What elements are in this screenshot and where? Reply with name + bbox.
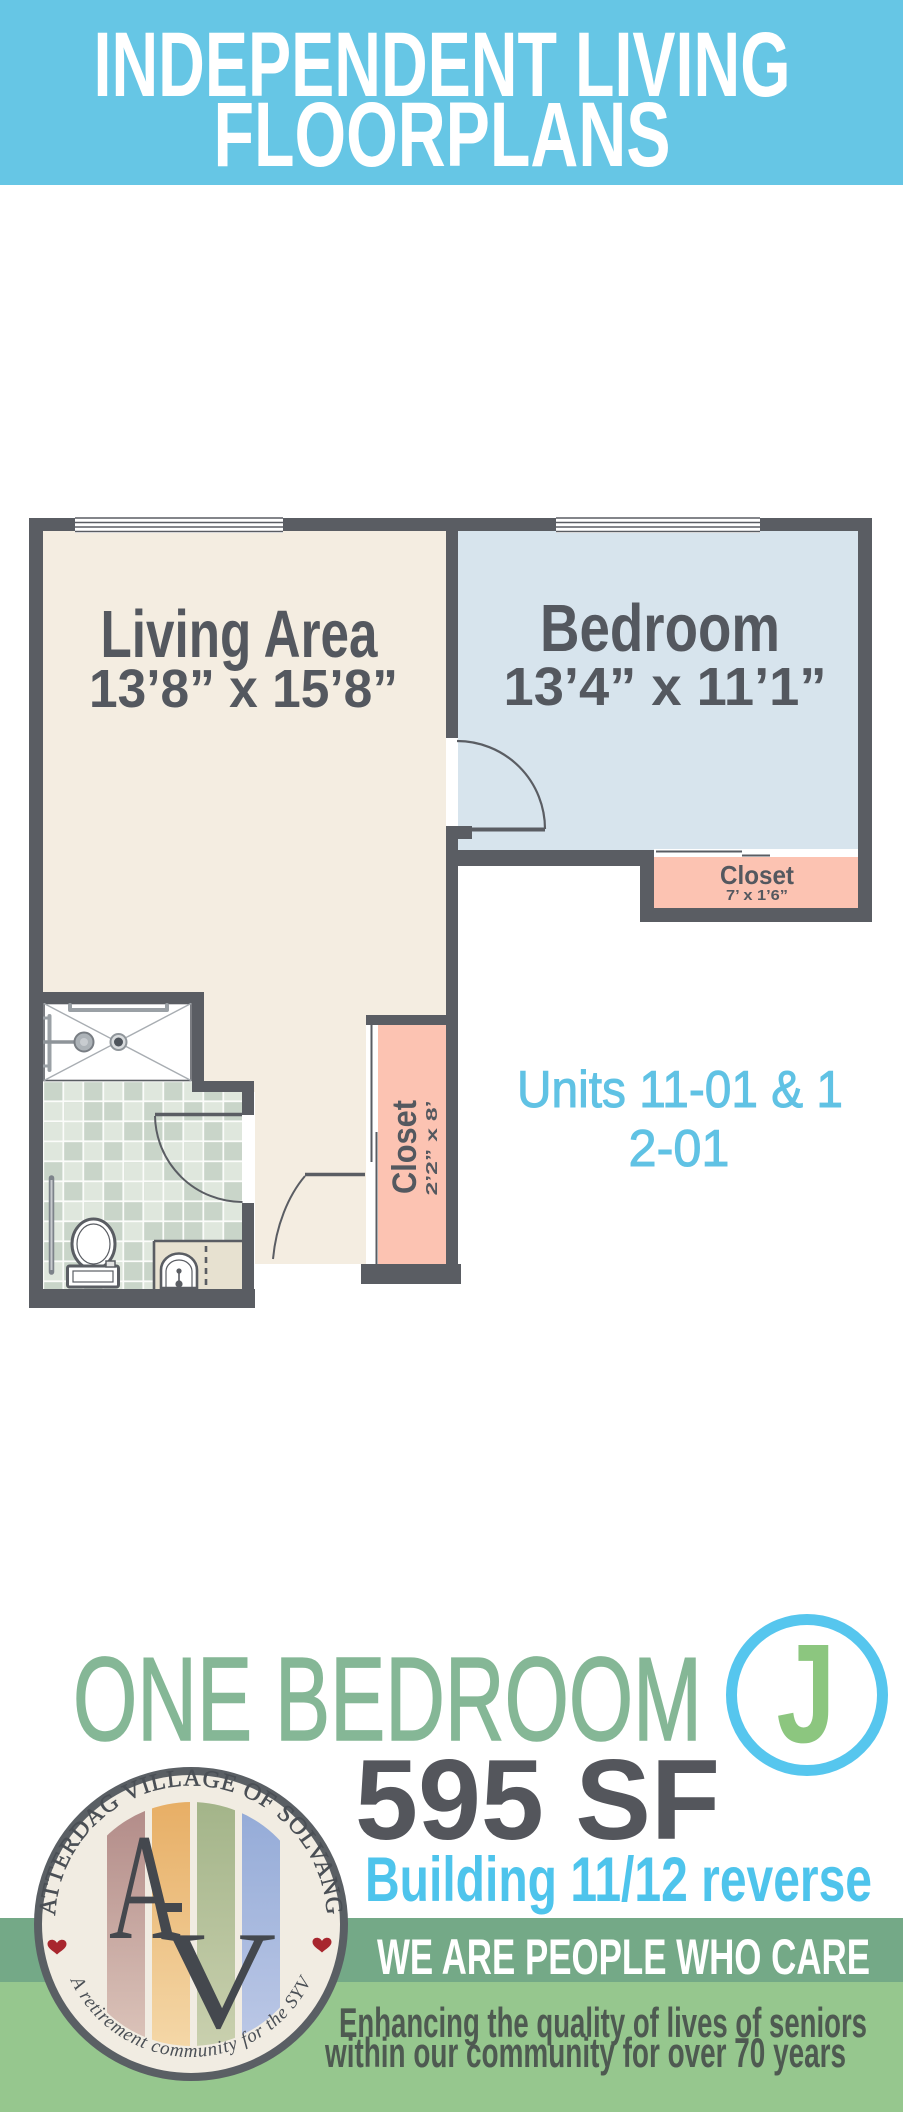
svg-text:7’ x 1’6”: 7’ x 1’6” bbox=[726, 887, 788, 904]
svg-text:within our community for over: within our community for over 70 years bbox=[324, 2029, 846, 2076]
svg-text:J: J bbox=[777, 1614, 836, 1772]
svg-text:Closet: Closet bbox=[386, 1100, 424, 1194]
svg-text:Units 11-01 & 1: Units 11-01 & 1 bbox=[517, 1061, 843, 1119]
svg-text:2’2” x 8’: 2’2” x 8’ bbox=[424, 1101, 441, 1196]
svg-text:13’4” x 11’1”: 13’4” x 11’1” bbox=[504, 657, 827, 717]
svg-text:WE ARE PEOPLE WHO CARE: WE ARE PEOPLE WHO CARE bbox=[377, 1929, 870, 1985]
svg-text:2-01: 2-01 bbox=[629, 1120, 730, 1178]
svg-text:Bedroom: Bedroom bbox=[540, 591, 780, 666]
svg-text:Building 11/12 reverse: Building 11/12 reverse bbox=[365, 1845, 872, 1915]
svg-text:13’8” x 15’8”: 13’8” x 15’8” bbox=[89, 659, 398, 719]
svg-text:Closet: Closet bbox=[720, 860, 794, 890]
svg-text:FLOORPLANS: FLOORPLANS bbox=[214, 84, 671, 186]
